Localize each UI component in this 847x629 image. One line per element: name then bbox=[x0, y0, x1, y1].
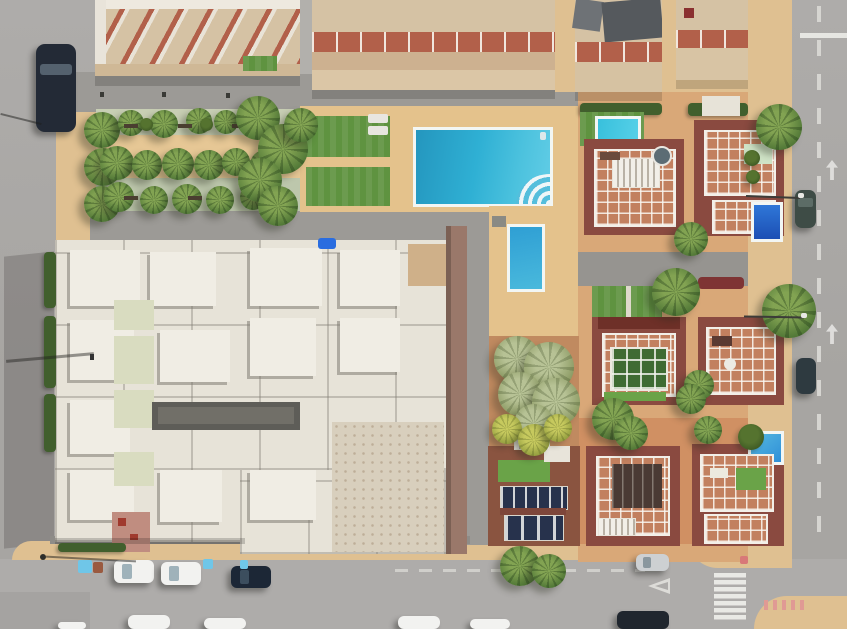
shrub bbox=[140, 118, 153, 131]
alley-gap-sand bbox=[662, 0, 676, 92]
bougainvillea-hedge bbox=[698, 277, 744, 289]
partial-car-bottom-edge bbox=[204, 618, 246, 629]
block-d-terracotta-band bbox=[676, 30, 748, 48]
rooftop-unit bbox=[601, 0, 663, 42]
garden-lamp bbox=[100, 92, 104, 97]
van-windshield bbox=[40, 64, 72, 75]
rooftop-unit bbox=[572, 0, 604, 32]
roof-unit bbox=[160, 470, 222, 522]
communal-lawn-2 bbox=[306, 167, 390, 206]
alley-gap bbox=[300, 0, 312, 74]
courtyard-floor bbox=[158, 407, 294, 424]
partial-car-bottom-edge-dark bbox=[617, 611, 669, 629]
palm-tree bbox=[674, 222, 708, 256]
roof-unit bbox=[250, 318, 316, 376]
parked-car-white bbox=[114, 560, 154, 583]
palm-tree bbox=[162, 148, 194, 180]
pool-lounger bbox=[368, 126, 388, 135]
pool-steps bbox=[516, 174, 550, 204]
direction-arrow-icon bbox=[826, 324, 838, 344]
villa-a-pergola bbox=[612, 158, 660, 188]
partial-car-bottom-edge bbox=[470, 619, 510, 629]
palm-tree bbox=[652, 268, 700, 316]
hedge-bottom bbox=[58, 543, 126, 552]
hedge-left bbox=[44, 316, 56, 388]
palm-tree-over-road bbox=[756, 104, 802, 150]
car-window bbox=[643, 557, 651, 568]
palm-tree bbox=[206, 186, 234, 214]
partial-car-bottom-edge bbox=[58, 622, 86, 629]
block-d-shadow bbox=[676, 80, 748, 89]
car-window bbox=[240, 570, 249, 584]
driving-car-silver bbox=[636, 554, 669, 571]
block-c-wall bbox=[575, 62, 662, 92]
container-brown bbox=[93, 562, 103, 573]
garden-bench bbox=[178, 124, 192, 128]
roof-unit bbox=[250, 470, 316, 520]
partial-car-bottom-edge bbox=[398, 616, 440, 629]
roof-terrace-dirt-patch bbox=[408, 244, 446, 286]
roof-unit bbox=[160, 330, 230, 382]
palm-tree bbox=[194, 150, 224, 180]
block-c-terracotta-band bbox=[575, 42, 662, 62]
block-d-wall bbox=[676, 48, 748, 80]
palm-tree bbox=[132, 150, 162, 180]
roof-unit bbox=[70, 250, 140, 306]
roof-unit bbox=[340, 250, 400, 306]
palm-tree bbox=[544, 414, 572, 442]
villa-b-white-roof bbox=[702, 96, 740, 116]
walkway-vertical bbox=[465, 211, 489, 545]
villa-f-lower-terrace bbox=[704, 514, 768, 544]
garden-bench bbox=[124, 196, 138, 200]
streetlight-lamp bbox=[801, 313, 807, 318]
villa-d-lounger bbox=[712, 336, 732, 346]
palm-tree-over-road bbox=[762, 284, 816, 338]
block-a-top-edge bbox=[95, 0, 300, 9]
alley-gap-sand bbox=[555, 0, 575, 92]
block-b-terracotta-band bbox=[312, 32, 555, 52]
communal-pool-large bbox=[413, 127, 553, 207]
solar-villa-divider bbox=[500, 508, 566, 515]
pink-kerb-marker bbox=[740, 556, 748, 564]
shrub bbox=[200, 118, 213, 131]
villa-pool-row1-right bbox=[751, 202, 783, 242]
apartment-block-b-roof bbox=[312, 0, 555, 32]
villa-e-awning bbox=[598, 518, 636, 536]
satellite-dish-icon bbox=[724, 358, 736, 370]
palm-tree bbox=[84, 112, 120, 148]
complex-right-facade bbox=[446, 226, 467, 554]
glass-panel-array bbox=[504, 515, 564, 541]
hedge-left bbox=[44, 394, 56, 452]
palm-tree bbox=[694, 416, 722, 444]
island-pink-hatching bbox=[764, 600, 808, 610]
hedge-left bbox=[44, 252, 56, 308]
direction-arrow-icon bbox=[826, 160, 838, 180]
parked-car-white bbox=[161, 562, 201, 585]
streetlight-pole bbox=[90, 354, 94, 360]
palm-tree bbox=[150, 110, 178, 138]
block-b-wall bbox=[312, 70, 555, 90]
center-dashed-line-right-road bbox=[817, 6, 821, 546]
yield-triangle-inner bbox=[655, 582, 668, 590]
shrub bbox=[744, 150, 760, 166]
skylight-strip bbox=[114, 390, 154, 428]
solar-villa-turf bbox=[498, 460, 550, 482]
shrub bbox=[738, 424, 764, 450]
garden-bench bbox=[124, 124, 138, 128]
block-c-shadow bbox=[575, 92, 662, 101]
garden-lamp bbox=[226, 93, 230, 98]
solar-panel-array bbox=[500, 486, 568, 510]
palm-tree bbox=[100, 146, 134, 180]
villa-e-sunroom bbox=[612, 464, 662, 508]
recycling-container-blue bbox=[78, 560, 92, 573]
block-a-green-patch bbox=[243, 56, 277, 71]
skylight-strip bbox=[114, 336, 154, 384]
villa-c-parapet bbox=[598, 317, 680, 329]
palm-tree bbox=[614, 416, 648, 450]
garden-lamp bbox=[162, 92, 166, 97]
garden-path bbox=[626, 286, 631, 319]
palm-tree bbox=[140, 186, 168, 214]
pedestrian-crossing bbox=[714, 573, 746, 621]
parked-van-dark bbox=[36, 44, 76, 132]
car-window bbox=[169, 566, 179, 581]
villa-c-lawn bbox=[592, 286, 626, 319]
palm-tree bbox=[214, 110, 238, 134]
pool-ladder bbox=[540, 132, 546, 140]
villa-c-conservatory bbox=[610, 347, 668, 391]
block-a-shadow bbox=[95, 76, 300, 86]
roof-unit bbox=[150, 252, 216, 306]
roof-unit bbox=[250, 248, 322, 306]
parked-car-right-street bbox=[796, 358, 816, 394]
pool-pump-box bbox=[492, 216, 506, 227]
streetlight-lamp bbox=[798, 193, 804, 198]
villa-a-jacuzzi bbox=[652, 146, 672, 166]
block-d-red-unit bbox=[684, 8, 694, 18]
palm-tree bbox=[284, 108, 318, 142]
garden-bench bbox=[188, 196, 202, 200]
skylight-strip bbox=[114, 300, 154, 330]
recycling-container-blue bbox=[240, 560, 248, 569]
partial-car-bottom-edge bbox=[128, 615, 170, 629]
palm-tree bbox=[676, 384, 706, 414]
palm-tree-over-road bbox=[532, 554, 566, 588]
aerial-photo-canvas bbox=[0, 0, 847, 629]
block-b-terrace-band bbox=[312, 52, 555, 70]
car-windshield bbox=[798, 198, 813, 207]
inner-courtyard bbox=[152, 402, 300, 430]
blue-tarp-object bbox=[318, 238, 336, 249]
skylight-strip bbox=[114, 452, 154, 486]
parked-car-dark-blue bbox=[231, 566, 271, 588]
entrance-detail bbox=[118, 518, 126, 526]
car-window bbox=[122, 564, 132, 579]
stop-line bbox=[800, 33, 847, 38]
palm-tree bbox=[258, 186, 298, 226]
beige-wing-roof bbox=[332, 422, 444, 552]
shrub bbox=[746, 170, 760, 184]
recycling-container-blue bbox=[203, 559, 213, 569]
communal-pool-small bbox=[507, 224, 545, 292]
pool-lounger bbox=[368, 114, 388, 123]
villa-f-white-item bbox=[710, 468, 728, 478]
facade-shade bbox=[446, 226, 451, 554]
villa-f-turf bbox=[736, 468, 766, 490]
roof-unit bbox=[340, 318, 400, 372]
villa-a-lounger bbox=[600, 152, 620, 160]
block-b-shadow bbox=[312, 90, 555, 99]
